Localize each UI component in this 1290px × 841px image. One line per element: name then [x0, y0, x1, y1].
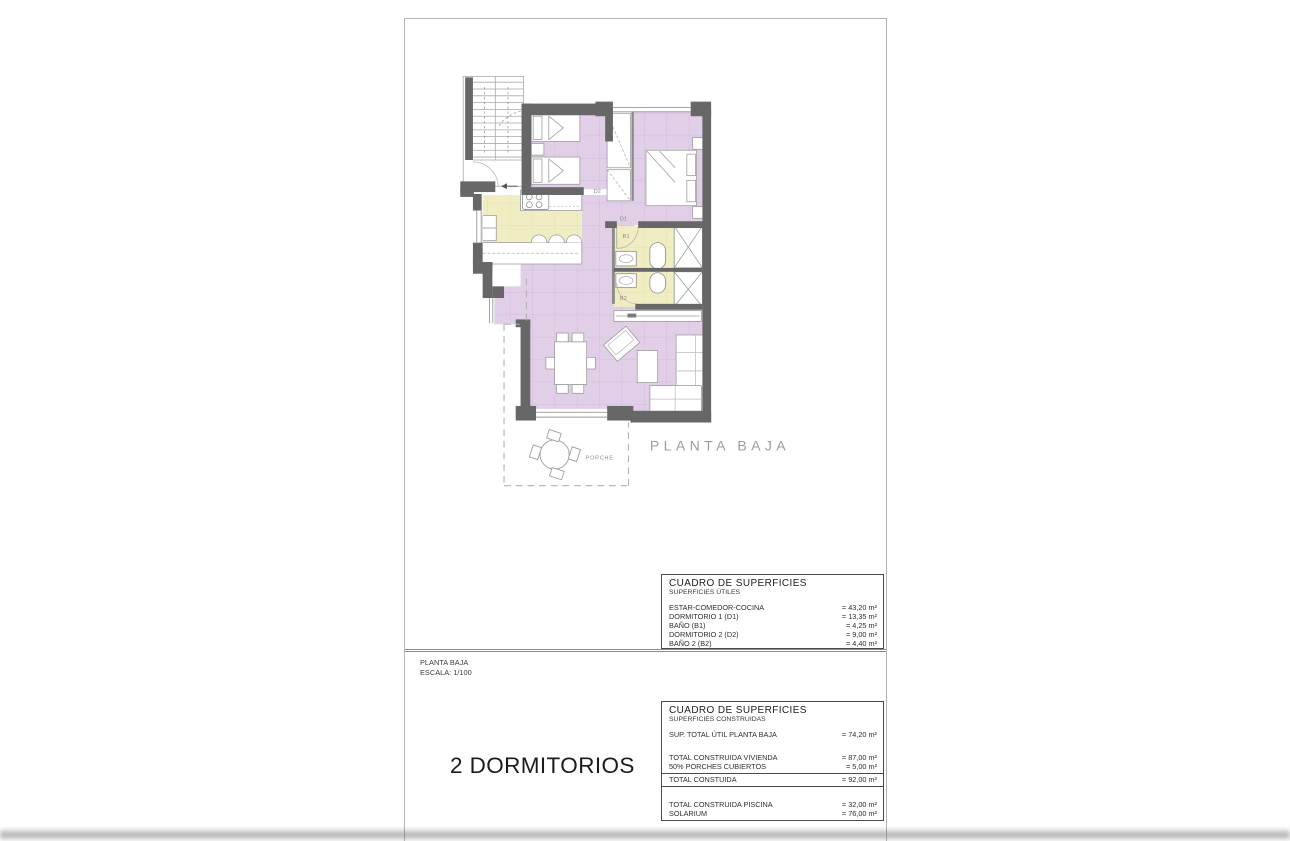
- table-row: DORMITORIO 2 (D2) = 9,00 m²: [669, 630, 877, 639]
- label-d1: D1: [620, 216, 627, 222]
- table-row: ESTAR-COMEDOR-COCINA = 43,20 m²: [669, 603, 877, 612]
- table-row: SUP. TOTAL ÚTIL PLANTA BAJA = 74,20 m²: [669, 730, 877, 739]
- label-b1: B1: [623, 234, 630, 240]
- plan-title: PLANTA BAJA: [650, 438, 790, 454]
- canvas: { "plan": { "title": "PLANTA BAJA", "roo…: [0, 0, 1290, 840]
- label-d2: D2: [593, 189, 600, 195]
- titleblock: PLANTA BAJA ESCALA: 1/100: [420, 658, 472, 677]
- table-title: CUADRO DE SUPERFICIES: [669, 578, 877, 589]
- table-row: BAÑO 2 (B2) = 4,40 m²: [669, 639, 877, 648]
- table-row: SOLARIUM = 76,00 m²: [669, 809, 877, 818]
- table-title: CUADRO DE SUPERFICIES: [669, 705, 877, 716]
- titleblock-plan-name: PLANTA BAJA: [420, 658, 472, 668]
- dwelling-type-label: 2 DORMITORIOS: [450, 753, 635, 779]
- table-rule: [662, 773, 883, 774]
- table-superficies-utiles: CUADRO DE SUPERFICIES SUPERFICIES ÚTILES…: [661, 574, 884, 649]
- table-subtitle: SUPERFICIES CONSTRUIDAS: [669, 716, 877, 724]
- label-b2: B2: [620, 296, 627, 302]
- staircase: [463, 76, 523, 186]
- table-rule: [662, 786, 883, 787]
- table-subtitle: SUPERFICIES ÚTILES: [669, 589, 877, 597]
- table-row: TOTAL CONSTRUIDA VIVIENDA = 87,00 m²: [669, 753, 877, 762]
- table-row: TOTAL CONSTUIDA = 92,00 m²: [669, 775, 877, 784]
- table-row: TOTAL CONSTRUIDA PISCINA = 32,00 m²: [669, 800, 877, 809]
- titleblock-separator: [405, 649, 886, 652]
- porch-table: [540, 440, 569, 469]
- plan-sheet: PORCHE D2 D1 B1 B2 PLANTA BAJA CUADRO DE…: [404, 18, 887, 841]
- porch-label: PORCHE: [586, 455, 614, 461]
- floor-plan: PORCHE D2 D1 B1 B2 PLANTA BAJA: [405, 19, 886, 649]
- sideboard: [614, 311, 702, 322]
- table-row: 50% PORCHES CUBIERTOS = 5,00 m²: [669, 762, 877, 771]
- table-superficies-construidas: CUADRO DE SUPERFICIES SUPERFICIES CONSTR…: [661, 701, 884, 821]
- table-row: DORMITORIO 1 (D1) = 13,35 m²: [669, 612, 877, 621]
- table-row: BAÑO (B1) = 4,25 m²: [669, 621, 877, 630]
- scan-edge-shadow: [0, 829, 1290, 840]
- titleblock-scale: ESCALA: 1/100: [420, 668, 472, 678]
